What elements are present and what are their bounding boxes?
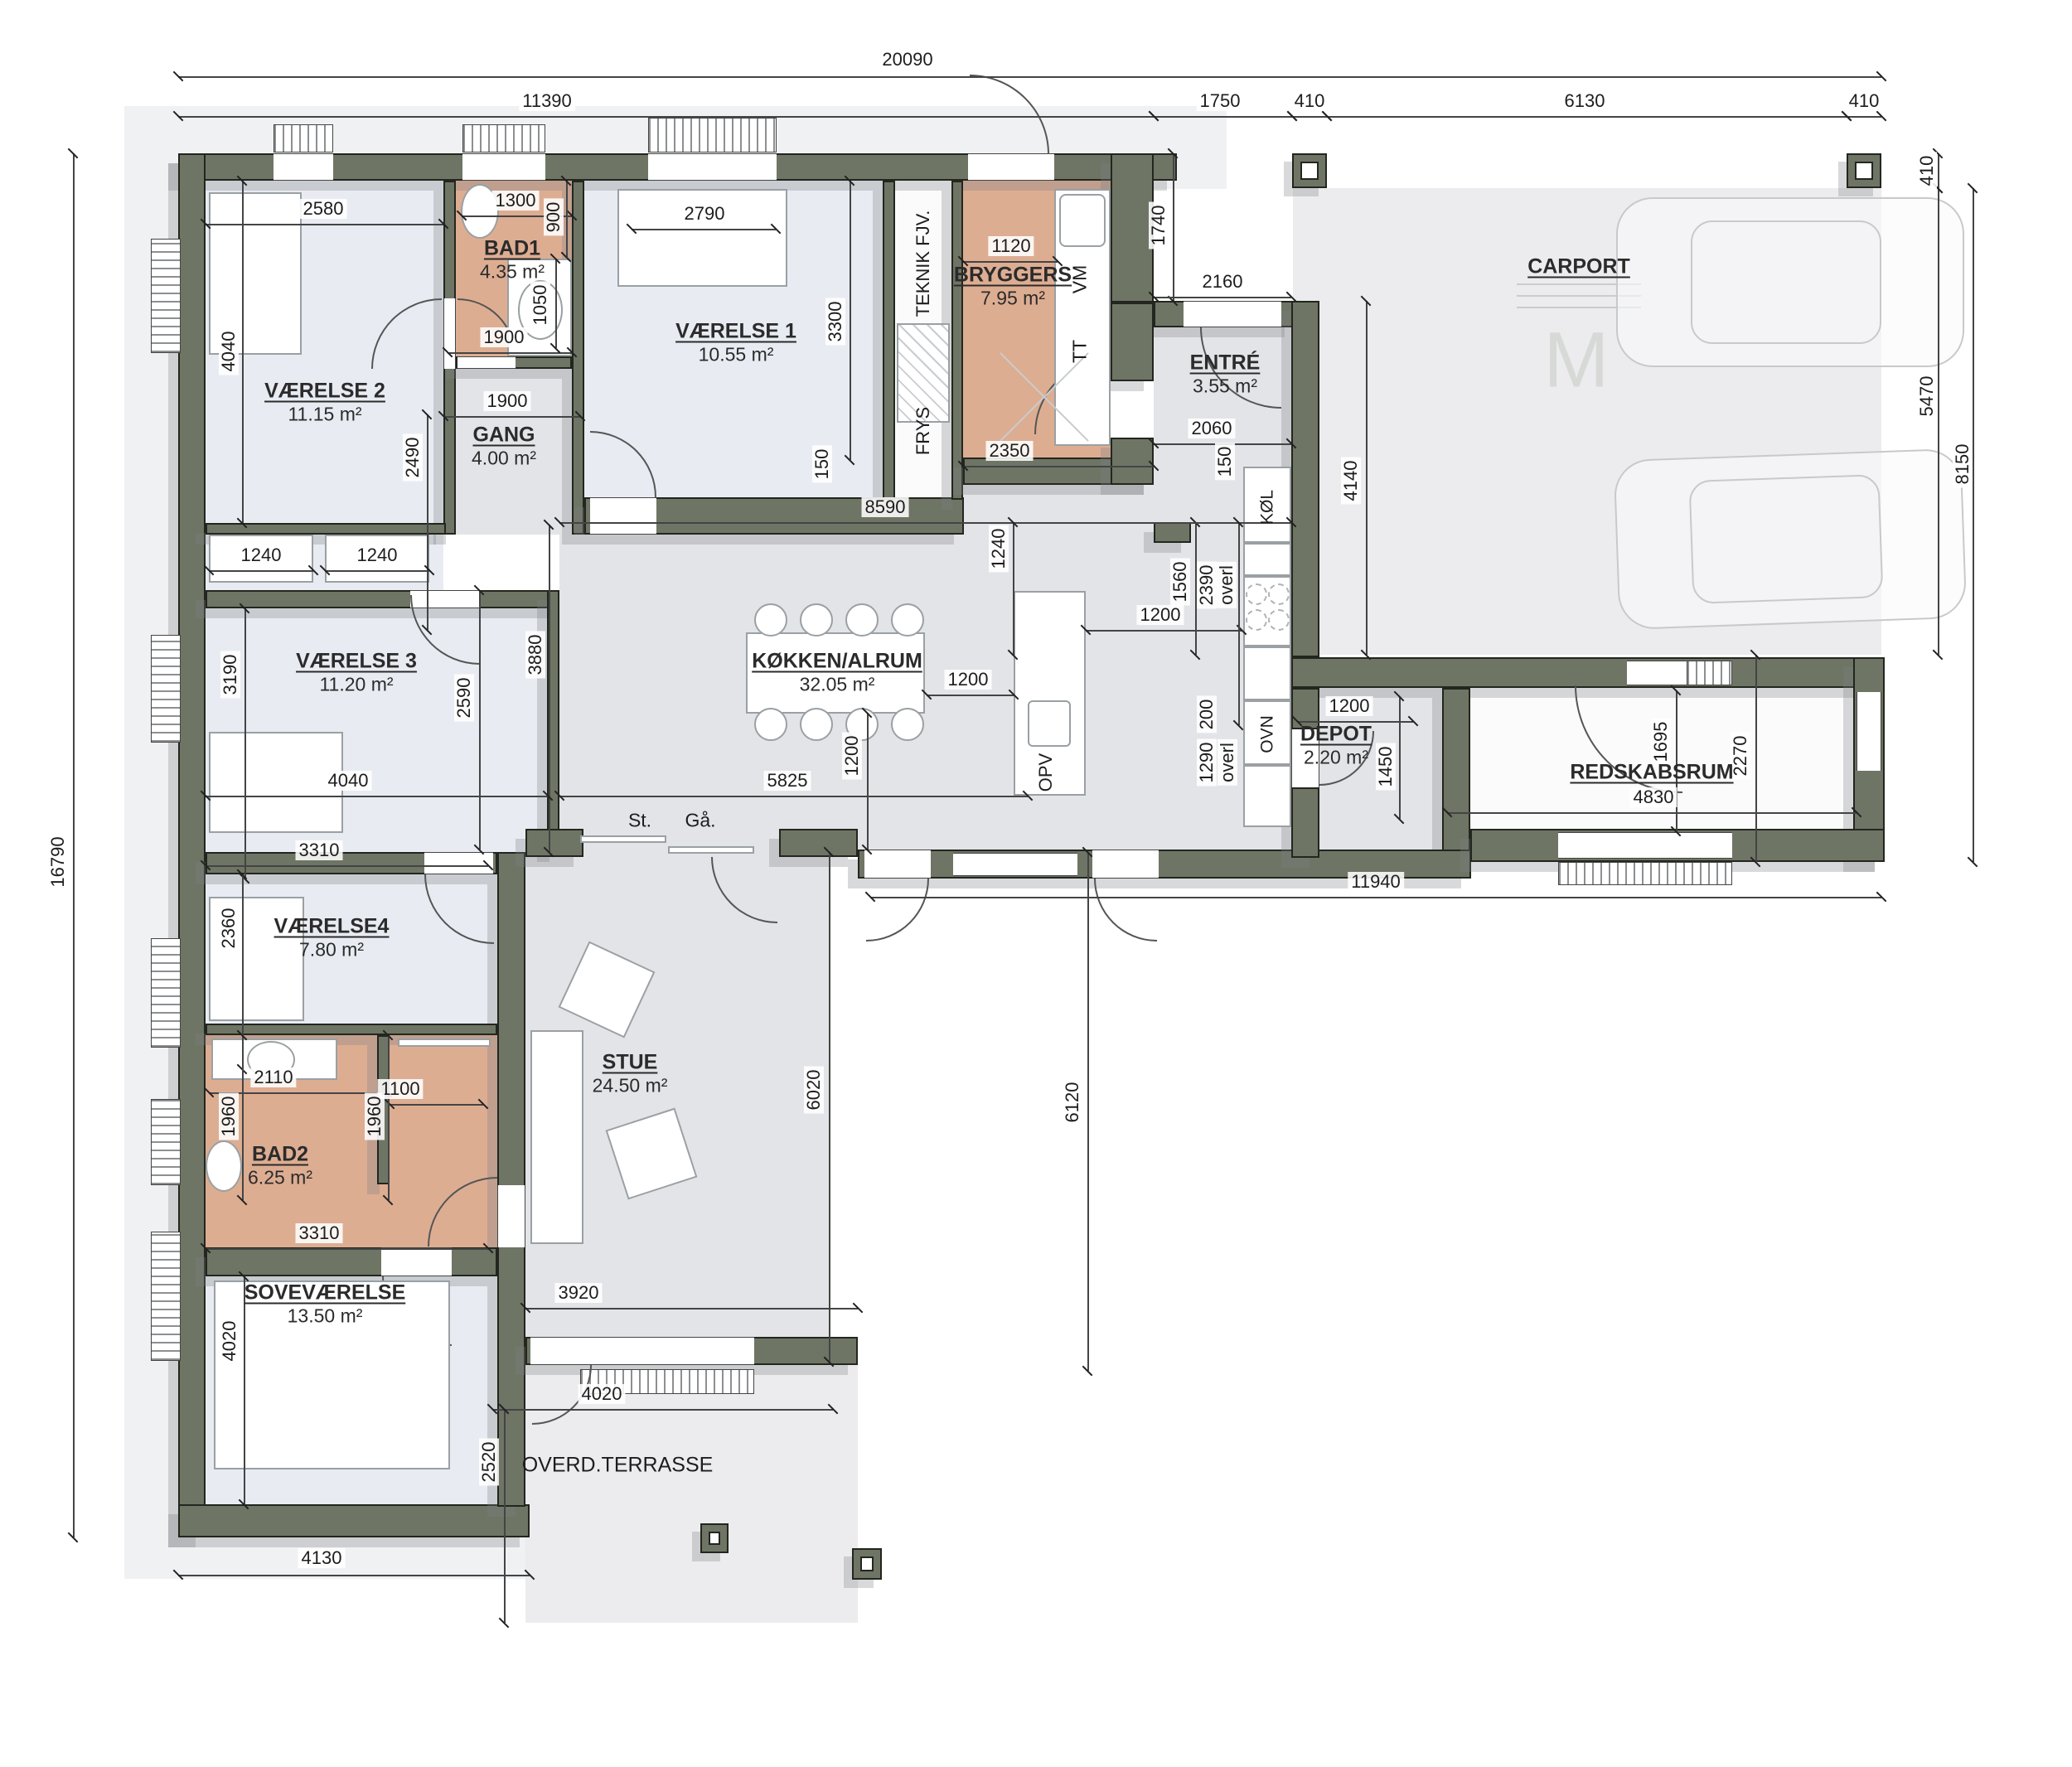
dimension-line — [427, 414, 428, 630]
dimension-line — [448, 352, 572, 354]
cooktop-burner — [1268, 583, 1290, 605]
wall-opening — [648, 153, 777, 181]
dim-label: 3880 — [525, 632, 545, 679]
dimension-line — [1086, 630, 1242, 632]
dim-label: 5825 — [764, 771, 811, 791]
annotation-label: VM — [1071, 265, 1090, 294]
carport-post-core — [1855, 162, 1873, 180]
dim-label: 1960 — [219, 1093, 239, 1140]
dimension-line — [963, 466, 1154, 467]
wall-opening — [864, 850, 931, 879]
wall-opening — [968, 153, 1054, 181]
dim-label: 4020 — [220, 1318, 240, 1365]
dim-label: 2390 — [1197, 562, 1217, 609]
room-area: 11.15 m² — [288, 405, 361, 424]
wall-opening — [590, 497, 656, 535]
dim-label: 1750 — [1197, 91, 1244, 111]
room-area: 4.00 m² — [472, 449, 536, 468]
annotation-label: OVERD.TERRASSE — [522, 1455, 714, 1476]
wall — [951, 181, 963, 500]
dim-label: 410 — [1291, 91, 1329, 111]
wall — [1442, 688, 1470, 858]
dim-label: 1450 — [1376, 743, 1396, 791]
annotation-label: TT — [1071, 340, 1090, 363]
chair — [754, 603, 787, 637]
dimension-line — [1327, 116, 1847, 118]
furniture — [398, 1038, 491, 1047]
room-name: VÆRELSE 3 — [296, 651, 417, 672]
annotation-label: St. — [628, 811, 651, 830]
room-name: CARPORT — [1527, 257, 1630, 278]
dimension-line — [850, 181, 851, 460]
annotation-label: OVN — [1259, 715, 1276, 753]
wall-opening — [530, 1337, 580, 1365]
room-area: 32.05 m² — [800, 675, 875, 695]
dim-label: 4130 — [298, 1548, 346, 1568]
wall — [1111, 303, 1154, 381]
chair — [800, 603, 833, 637]
dim-label: 3920 — [555, 1283, 603, 1303]
dimension-line — [325, 570, 429, 572]
dimension-line — [244, 608, 246, 879]
dimension-line — [549, 525, 550, 852]
car-cabin — [1688, 474, 1883, 604]
dimension-line — [963, 261, 1058, 263]
dimension-line — [1154, 116, 1292, 118]
dimension-line — [73, 153, 75, 1537]
dimension-line — [1447, 812, 1857, 814]
dim-label: 4830 — [1630, 787, 1677, 807]
dimension-line — [492, 1409, 833, 1411]
wall-opening — [1857, 692, 1881, 771]
wall-opening — [1627, 661, 1687, 685]
chair — [754, 708, 787, 741]
dim-label: 4020 — [579, 1384, 626, 1404]
dim-label: 3190 — [220, 651, 240, 699]
dimension-line — [566, 181, 568, 257]
room-area: 11.20 m² — [319, 675, 393, 695]
furniture — [1243, 765, 1291, 827]
dim-label: 6020 — [804, 1067, 824, 1114]
dimension-line — [525, 1308, 858, 1310]
wall-opening — [424, 852, 493, 874]
carport-post-core — [860, 1556, 874, 1571]
dim-label: overl — [1217, 562, 1237, 608]
room-name: REDSKABSRUM — [1570, 762, 1733, 783]
dim-label: 3310 — [296, 1223, 343, 1243]
dimension-line — [1013, 522, 1014, 655]
dim-label: 2590 — [454, 675, 474, 722]
dimension-line — [1292, 116, 1327, 118]
dimension-line — [388, 1035, 390, 1200]
wall — [206, 1024, 497, 1035]
window — [274, 124, 333, 152]
dimension-line — [479, 590, 481, 850]
dimension-line — [632, 229, 776, 230]
wall — [1291, 657, 1885, 688]
wall — [206, 523, 446, 535]
dim-label: 1240 — [238, 545, 285, 565]
dim-label: 1900 — [484, 391, 531, 411]
wall-opening — [381, 1247, 452, 1276]
wall-opening — [1092, 850, 1159, 879]
room-name: VÆRELSE 1 — [675, 322, 796, 342]
furniture — [668, 846, 754, 854]
wall-opening — [1558, 832, 1732, 859]
carport-post-core — [709, 1532, 720, 1545]
dim-label: 6120 — [1063, 1079, 1082, 1126]
room-name: VÆRELSE 2 — [264, 381, 385, 402]
dim-label: 410 — [1917, 152, 1937, 190]
dim-label: 1695 — [1651, 719, 1671, 766]
dimension-line — [206, 796, 548, 797]
dimension-line — [1847, 116, 1881, 118]
wall-opening — [953, 853, 1077, 876]
room-name: ENTRÉ — [1190, 353, 1261, 374]
dimension-line — [559, 796, 1028, 797]
dimension-line — [559, 522, 1291, 524]
dimension-line — [209, 570, 313, 572]
dimension-line — [1366, 301, 1368, 655]
annotation-label: FRYS — [914, 407, 932, 455]
dim-label: 1200 — [842, 733, 862, 780]
dim-label: 1050 — [530, 282, 550, 329]
room-area: 7.95 m² — [980, 289, 1045, 308]
room-area: 2.20 m² — [1304, 748, 1368, 767]
wall — [1154, 522, 1191, 543]
room-name: GANG — [473, 425, 535, 446]
dim-label: 1300 — [492, 191, 540, 211]
dimension-line — [867, 713, 869, 850]
dim-label: 1240 — [354, 545, 401, 565]
dim-label: 4040 — [325, 771, 372, 791]
window — [151, 938, 181, 1048]
dim-label: 150 — [812, 446, 832, 483]
dimension-line — [178, 76, 1881, 78]
window — [151, 1099, 181, 1185]
window — [151, 239, 181, 353]
dimension-line — [1399, 696, 1401, 819]
chair — [891, 603, 924, 637]
car-cabin — [1691, 220, 1881, 344]
dimension-line — [504, 1409, 506, 1623]
room-name: VÆRELSE4 — [274, 917, 390, 937]
dim-label: 1200 — [945, 670, 992, 690]
wall-opening — [497, 1185, 525, 1247]
dimension-line — [178, 1575, 530, 1576]
room-area: 24.50 m² — [593, 1077, 668, 1096]
dim-label: 2790 — [681, 204, 729, 224]
dimension-line — [829, 852, 830, 1362]
dimension-line — [206, 1248, 488, 1250]
door-swing-arc — [1094, 879, 1157, 942]
dimension-line — [1755, 655, 1757, 862]
furniture — [1059, 194, 1106, 247]
dim-label: 1900 — [481, 327, 528, 347]
dim-label: 8150 — [1953, 441, 1973, 488]
wall — [883, 181, 895, 500]
wall — [206, 590, 559, 608]
room-area: 13.50 m² — [288, 1307, 363, 1326]
dimension-line — [870, 897, 1881, 898]
dim-label: 1740 — [1149, 202, 1169, 249]
dim-label: 900 — [544, 199, 564, 236]
dim-label: 2160 — [1199, 272, 1247, 292]
wall-opening — [1184, 301, 1281, 327]
dimension-line — [390, 1104, 483, 1106]
dimension-line — [555, 259, 557, 348]
wall — [572, 181, 584, 535]
dimension-line — [1173, 153, 1174, 301]
wall — [178, 1504, 530, 1537]
door-swing-arc — [866, 879, 929, 942]
room-name: DEPOT — [1300, 724, 1372, 745]
dim-label: 2490 — [403, 434, 423, 482]
dimension-line — [1238, 522, 1240, 725]
chair — [891, 708, 924, 741]
window — [151, 1232, 181, 1361]
furniture — [1028, 700, 1071, 747]
room-name: BRYGGERS — [954, 265, 1072, 286]
dim-label: 3310 — [296, 840, 343, 860]
dim-label: 2520 — [479, 1439, 499, 1486]
annotation-label: OPV — [1037, 753, 1055, 792]
furniture — [1243, 543, 1291, 576]
window — [1687, 661, 1732, 685]
dimension-line — [927, 695, 1014, 696]
window — [462, 124, 545, 152]
dim-label: 4040 — [219, 328, 239, 375]
wall-opening — [443, 298, 456, 369]
floor-plan-canvas: 2009011390175041061304104105470815022701… — [0, 0, 2072, 1767]
dim-label: 2360 — [219, 905, 239, 952]
furniture — [530, 1030, 583, 1244]
dim-label: 410 — [1846, 91, 1883, 111]
furniture — [580, 835, 666, 843]
dimension-line — [1087, 852, 1089, 1371]
room-name: BAD2 — [252, 1145, 308, 1165]
dim-label: 150 — [1215, 443, 1235, 481]
room-area: 10.55 m² — [699, 346, 774, 365]
chair — [845, 603, 879, 637]
dimension-line — [242, 181, 244, 523]
room-name: KØKKEN/ALRUM — [752, 651, 922, 672]
wall — [178, 153, 206, 1537]
wall — [206, 1247, 497, 1276]
room-area: 7.80 m² — [299, 941, 364, 960]
window — [648, 118, 777, 152]
wall — [1291, 301, 1319, 657]
dim-label: 6130 — [1561, 91, 1609, 111]
room-area: 4.35 m² — [480, 263, 545, 282]
dim-label: 2350 — [986, 441, 1034, 461]
wall-opening — [457, 356, 516, 369]
dim-label: 8590 — [862, 497, 909, 517]
annotation-label: KØL — [1259, 490, 1276, 525]
room-area: 6.25 m² — [248, 1169, 312, 1188]
dimension-line — [178, 116, 1154, 118]
dim-label: 2060 — [1188, 419, 1236, 438]
dimension-line — [206, 865, 488, 867]
dim-label: 1240 — [989, 525, 1009, 573]
wall-opening — [462, 153, 545, 181]
fixture-oval — [206, 1140, 242, 1192]
cooktop-burner — [1268, 609, 1290, 631]
dim-label: 1290 — [1197, 739, 1217, 787]
wall-opening — [274, 153, 333, 181]
wall-opening — [580, 1337, 754, 1365]
dim-label: 3300 — [825, 298, 845, 346]
dimension-line — [1154, 297, 1291, 298]
dimension-line — [443, 416, 580, 418]
dim-label: overl — [1218, 739, 1237, 786]
cooktop-burner — [1246, 609, 1267, 631]
dim-label: 20090 — [879, 50, 936, 70]
dimension-line — [1938, 188, 1939, 655]
furniture — [1243, 646, 1291, 700]
dim-label: 1120 — [988, 236, 1034, 256]
dim-label: 11390 — [519, 91, 575, 111]
window — [1558, 862, 1732, 885]
dim-label: 1560 — [1170, 559, 1190, 606]
dimension-line — [1973, 188, 1974, 862]
annotation-label: Gå. — [685, 811, 715, 830]
furniture — [209, 732, 343, 833]
dim-label: 1200 — [1137, 605, 1184, 625]
room-name: SOVEVÆRELSE — [244, 1283, 406, 1304]
annotation-label: M — [1543, 322, 1609, 400]
dim-label: 2580 — [300, 199, 347, 219]
dimension-line — [242, 1035, 244, 1200]
door-swing-arc — [970, 75, 1049, 154]
room-name: STUE — [603, 1053, 658, 1073]
room-area: 3.55 m² — [1193, 377, 1257, 396]
dim-label: 16790 — [48, 833, 68, 890]
wall — [525, 829, 583, 857]
dim-label: 1960 — [365, 1093, 385, 1140]
wall — [779, 829, 858, 857]
chair — [800, 708, 833, 741]
cooktop-burner — [1246, 583, 1267, 605]
dim-label: 2110 — [250, 1067, 296, 1087]
dim-label: 200 — [1197, 696, 1217, 733]
carport-post-core — [1300, 162, 1319, 180]
dimension-line — [244, 1276, 245, 1504]
dimension-line — [1938, 153, 1939, 188]
dim-label: 4140 — [1341, 457, 1361, 505]
dim-label: 1200 — [1326, 696, 1373, 716]
annotation-label: TEKNIK FJV. — [914, 211, 932, 317]
dim-label: 5470 — [1917, 373, 1937, 420]
room-name: BAD1 — [484, 239, 540, 259]
window — [151, 635, 181, 743]
wall — [1291, 787, 1319, 858]
dim-label: 11940 — [1348, 872, 1404, 892]
